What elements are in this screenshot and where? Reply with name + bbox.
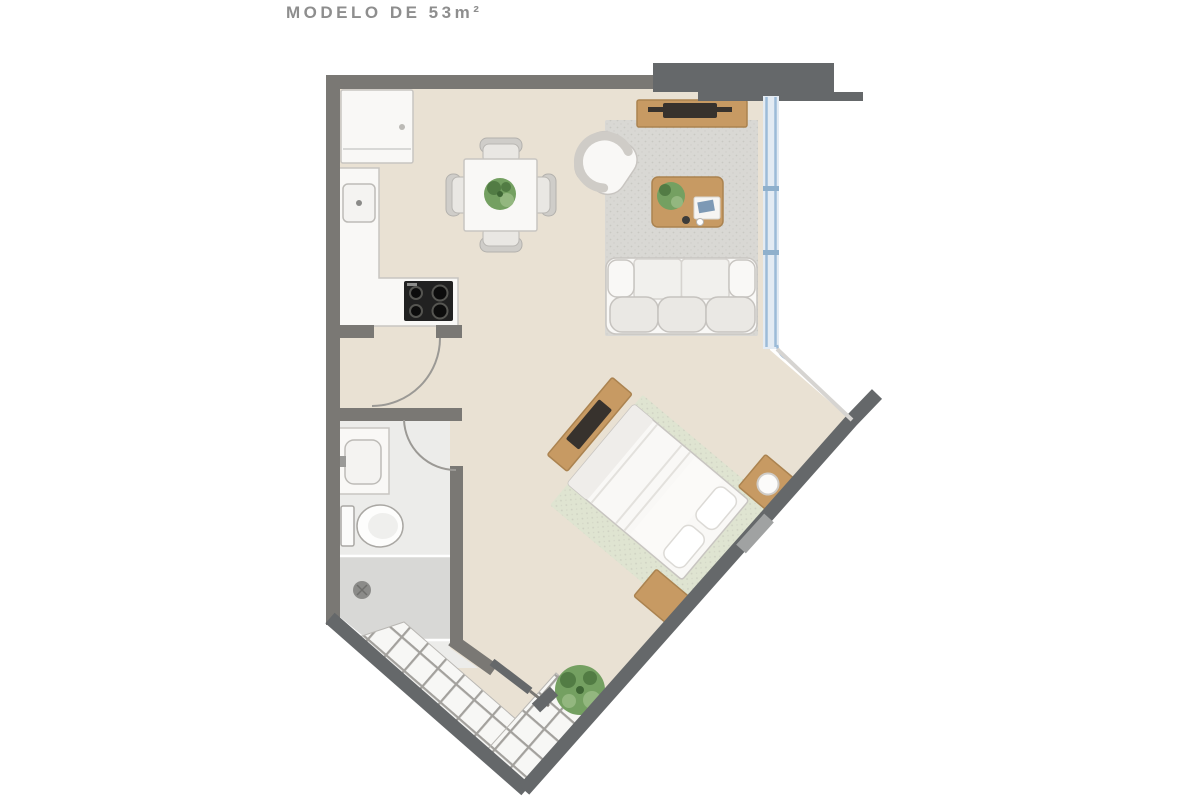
exterior-wall-top	[326, 75, 662, 89]
kitchen-wall	[436, 325, 462, 338]
vanity-icon	[337, 428, 389, 494]
bathroom-wall-top	[334, 408, 462, 421]
exterior-wall-header-ext	[698, 92, 863, 101]
fridge-icon	[341, 90, 413, 163]
coffee-table	[652, 177, 723, 227]
toilet-icon	[341, 505, 403, 547]
window-glazing	[763, 96, 790, 360]
exterior-wall-header	[653, 63, 834, 92]
tv-icon	[663, 103, 717, 118]
mug-icon	[682, 216, 690, 224]
coffee-table-plant-icon	[657, 182, 685, 210]
floor-plan-page: MODELO DE 53m²	[0, 0, 1201, 800]
tv-console	[637, 100, 747, 127]
sofa-armrest	[729, 260, 755, 297]
stove-icon	[404, 281, 453, 321]
bathroom-wall-right	[450, 466, 463, 644]
exterior-wall-left	[326, 75, 340, 625]
centerpiece-plant-icon	[484, 178, 516, 210]
kitchen-sink-icon	[343, 184, 375, 222]
floor-plan	[0, 0, 1201, 800]
sofa-armrest	[608, 260, 634, 297]
sofa-icon	[606, 258, 757, 334]
kitchen-wall	[334, 325, 374, 338]
